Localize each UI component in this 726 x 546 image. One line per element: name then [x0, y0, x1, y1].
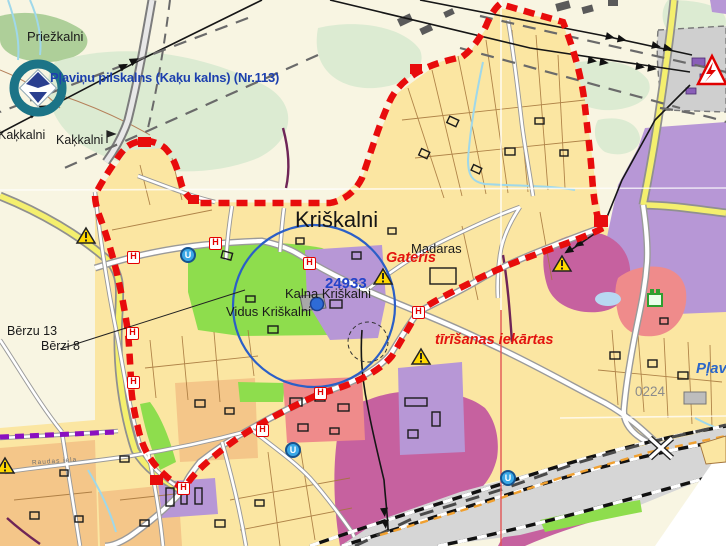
label-gateris: Gateris [386, 251, 436, 266]
label-priezkalni: Priežkalni [27, 30, 83, 43]
utility-marker: U [180, 247, 196, 263]
label-town-kriskalni: Kriškalni [295, 209, 378, 231]
utility-marker: U [500, 470, 516, 486]
bus-stop-marker: H [314, 387, 327, 400]
label-plavinas-partial: Pļav [696, 361, 726, 376]
map-viewport[interactable]: Priežkalni Pļaviņu pilskalns (Kaķu kalns… [0, 0, 726, 546]
bus-stop-marker: H [126, 327, 139, 340]
label-tirisanas-iekartas: tīrīšanas iekārtas [435, 333, 554, 348]
label-kakkalni-left: Kaķkalni [0, 129, 45, 142]
label-monument-name: Pļaviņu pilskalns (Kaķu kalns) (Nr.113) [50, 71, 279, 84]
bus-stop-marker: H [256, 424, 269, 437]
label-kakkalni-right: Kaķkalni [56, 134, 103, 147]
utility-marker: U [285, 442, 301, 458]
bus-stop-marker: H [127, 251, 140, 264]
label-sheet-number: 0224 [635, 385, 665, 399]
bus-stop-marker: H [209, 237, 222, 250]
label-berzu-13: Bērzu 13 [7, 325, 57, 338]
label-kalna-kriskalni: Kalna Kriškalni [285, 287, 371, 300]
label-vidus-kriskalni: Vidus Kriškalni [226, 305, 311, 318]
bus-stop-marker: H [177, 482, 190, 495]
label-berzi-8: Bērzi 8 [41, 340, 80, 353]
vegetation-zones [0, 0, 726, 171]
bus-stop-marker: H [127, 376, 140, 389]
bus-stop-marker: H [412, 306, 425, 319]
bus-stop-marker: H [303, 257, 316, 270]
